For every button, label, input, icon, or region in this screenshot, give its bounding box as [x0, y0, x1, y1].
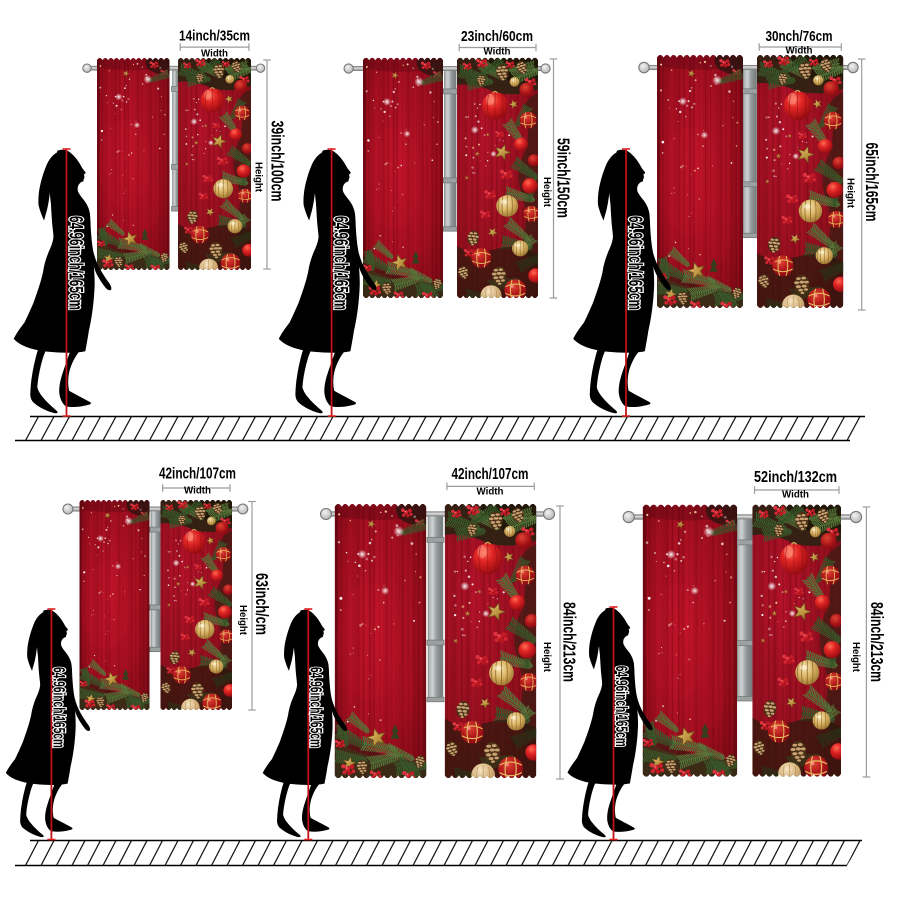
svg-text:52inch/132cm: 52inch/132cm — [754, 469, 837, 486]
svg-text:63inch/cm: 63inch/cm — [252, 573, 272, 635]
svg-text:Height: Height — [850, 642, 862, 672]
svg-text:42inch/107cm: 42inch/107cm — [452, 466, 529, 483]
svg-text:23inch/60cm: 23inch/60cm — [461, 29, 533, 45]
svg-text:84inch/213cm: 84inch/213cm — [867, 602, 887, 682]
svg-text:Height: Height — [541, 177, 553, 207]
svg-text:Height: Height — [541, 642, 553, 672]
svg-text:Width: Width — [786, 46, 813, 57]
svg-text:Width: Width — [201, 49, 228, 60]
svg-text:84inch/213cm: 84inch/213cm — [560, 602, 580, 682]
svg-text:Width: Width — [484, 47, 511, 58]
svg-text:64.96inch/165cm: 64.96inch/165cm — [307, 667, 325, 748]
svg-text:59inch/150cm: 59inch/150cm — [554, 138, 574, 218]
svg-text:Width: Width — [782, 490, 809, 501]
svg-text:30nch/76cm: 30nch/76cm — [766, 29, 833, 45]
svg-text:64.96inch/165cm: 64.96inch/165cm — [330, 216, 351, 310]
svg-text:64.96inch/165cm: 64.96inch/165cm — [624, 216, 645, 310]
svg-text:Height: Height — [237, 605, 249, 635]
svg-text:42inch/107cm: 42inch/107cm — [159, 466, 236, 483]
svg-text:64.96inch/165cm: 64.96inch/165cm — [65, 216, 86, 310]
svg-text:64.96inch/165cm: 64.96inch/165cm — [612, 666, 630, 747]
svg-text:Height: Height — [845, 178, 857, 208]
svg-text:65inch/165cm: 65inch/165cm — [862, 143, 882, 222]
svg-text:Width: Width — [184, 486, 211, 497]
svg-text:39inch/100cm: 39inch/100cm — [268, 121, 288, 202]
svg-text:Height: Height — [253, 162, 265, 192]
svg-text:64.96inch/165cm: 64.96inch/165cm — [50, 667, 68, 748]
svg-text:Width: Width — [477, 487, 504, 498]
svg-text:14inch/35cm: 14inch/35cm — [179, 29, 250, 45]
